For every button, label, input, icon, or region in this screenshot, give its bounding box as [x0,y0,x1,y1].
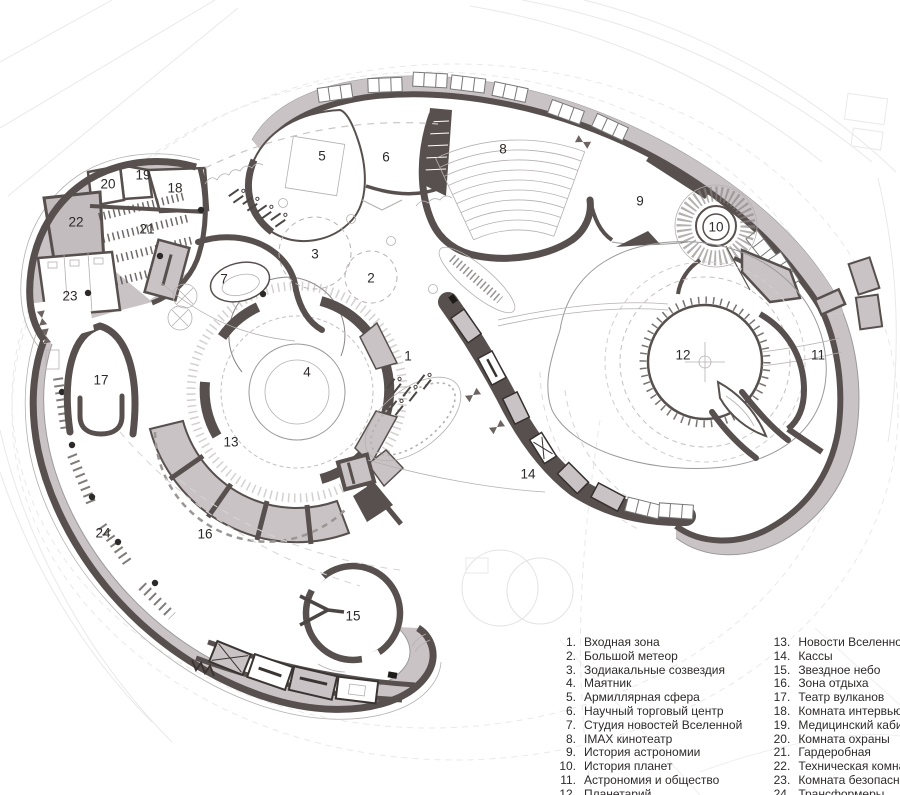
plan-label-16: 16 [197,527,212,542]
legend-item-number: 24. [766,788,790,795]
legend-item: 7.Студия новостей Вселенной [552,719,742,733]
legend-item-number: 8. [552,733,576,747]
legend-item-number: 6. [552,705,576,719]
legend-item-number: 2. [552,650,576,664]
legend-item-number: 15. [766,664,790,678]
legend-item-number: 22. [766,760,790,774]
legend-item: 18.Комната интервью [766,705,900,719]
floor-plan-page: 123456789101112131415161718192021222324 … [0,0,900,795]
legend-item: 24.Трансформеры [766,788,900,795]
legend-item-label: Зона отдыха [798,677,868,691]
legend-item: 8.IMAX кинотеатр [552,733,742,747]
legend-item-number: 12. [552,788,576,795]
legend-item: 11.Астрономия и общество [552,774,742,788]
plan-label-11: 11 [811,348,825,363]
plan-label-21: 21 [139,222,154,237]
legend-item-label: Театр вулканов [798,691,884,705]
legend-item-number: 4. [552,677,576,691]
legend-item-label: Планетарий [584,788,651,795]
plan-label-24: 24 [95,526,111,541]
plan-label-7: 7 [220,272,228,287]
legend-item-label: Комната безопасности [798,774,900,788]
plan-label-13: 13 [223,435,238,450]
legend-item-number: 7. [552,719,576,733]
legend-item-label: Комната охраны [798,733,889,747]
plan-label-9: 9 [636,194,644,209]
legend-item-label: Входная зона [584,636,660,650]
plan-label-8: 8 [499,142,507,157]
legend-item-number: 21. [766,746,790,760]
legend-item-label: Техническая комната [798,760,900,774]
legend-item-number: 1. [552,636,576,650]
legend-item-label: Большой метеор [584,650,678,664]
legend-item-number: 9. [552,746,576,760]
plan-label-22: 22 [68,215,83,230]
plan-label-4: 4 [303,365,311,380]
legend-item-number: 14. [766,650,790,664]
legend-item: 3.Зодиакальные созвездия [552,664,742,678]
plan-label-18: 18 [167,181,182,196]
legend-item: 10.История планет [552,760,742,774]
legend-item-label: Зодиакальные созвездия [584,664,725,678]
legend-item: 2.Большой метеор [552,650,742,664]
plan-label-15: 15 [345,609,360,624]
legend-item: 17.Театр вулканов [766,691,900,705]
legend-item: 23.Комната безопасности [766,774,900,788]
legend-item-label: Медицинский кабинет [798,719,900,733]
plan-label-6: 6 [382,150,390,165]
legend-column-2: 13.Новости Вселенной14.Кассы15.Звездное … [766,636,900,795]
legend-item-label: Новости Вселенной [798,636,900,650]
plan-label-17: 17 [93,373,108,388]
plan-label-1: 1 [404,349,412,364]
legend-item: 20.Комната охраны [766,733,900,747]
plan-label-19: 19 [135,168,150,183]
plan-label-23: 23 [62,289,77,304]
plan-label-12: 12 [675,348,690,363]
legend-item: 6.Научный торговый центр [552,705,742,719]
legend-item: 1.Входная зона [552,636,742,650]
legend-column-1: 1.Входная зона2.Большой метеор3.Зодиакал… [552,636,742,795]
legend-item-number: 10. [552,760,576,774]
chevron-mark [362,200,402,210]
legend-item: 13.Новости Вселенной [766,636,900,650]
legend-item-number: 20. [766,733,790,747]
legend-item-label: Кассы [798,650,832,664]
legend-item-label: Армиллярная сфера [584,691,700,705]
legend-item-label: Студия новостей Вселенной [584,719,742,733]
plan-label-2: 2 [367,271,375,286]
legend-item: 16.Зона отдыха [766,677,900,691]
legend-item-number: 17. [766,691,790,705]
legend: 1.Входная зона2.Большой метеор3.Зодиакал… [552,636,900,795]
legend-item-number: 18. [766,705,790,719]
legend-item: 9.История астрономии [552,746,742,760]
plan-label-20: 20 [100,177,115,192]
legend-item-number: 19. [766,719,790,733]
legend-item-number: 3. [552,664,576,678]
legend-item-label: Гардеробная [798,746,871,760]
legend-item: 14.Кассы [766,650,900,664]
legend-item-label: Астрономия и общество [584,774,719,788]
legend-item-label: Трансформеры [798,788,884,795]
legend-item: 19.Медицинский кабинет [766,719,900,733]
legend-item-label: Комната интервью [798,705,900,719]
legend-item-label: История планет [584,760,672,774]
legend-item-label: IMAX кинотеатр [584,733,672,747]
legend-item: 21.Гардеробная [766,746,900,760]
legend-item: 12.Планетарий [552,788,742,795]
legend-item-label: История астрономии [584,746,700,760]
legend-item-number: 16. [766,677,790,691]
legend-item-label: Маятник [584,677,631,691]
legend-item: 4.Маятник [552,677,742,691]
plan-label-3: 3 [311,247,319,262]
legend-item: 5.Армиллярная сфера [552,691,742,705]
legend-item-number: 13. [766,636,790,650]
legend-item-label: Звездное небо [798,664,880,678]
top-wing [248,72,843,315]
plan-label-5: 5 [318,149,326,164]
legend-item-label: Научный торговый центр [584,705,724,719]
legend-item: 22.Техническая комната [766,760,900,774]
room-12-planetarium [643,300,767,436]
legend-item-number: 23. [766,774,790,788]
plan-label-10: 10 [708,220,723,235]
plan-label-14: 14 [520,467,536,482]
legend-item: 15.Звездное небо [766,664,900,678]
legend-item-number: 5. [552,691,576,705]
legend-item-number: 11. [552,774,576,788]
